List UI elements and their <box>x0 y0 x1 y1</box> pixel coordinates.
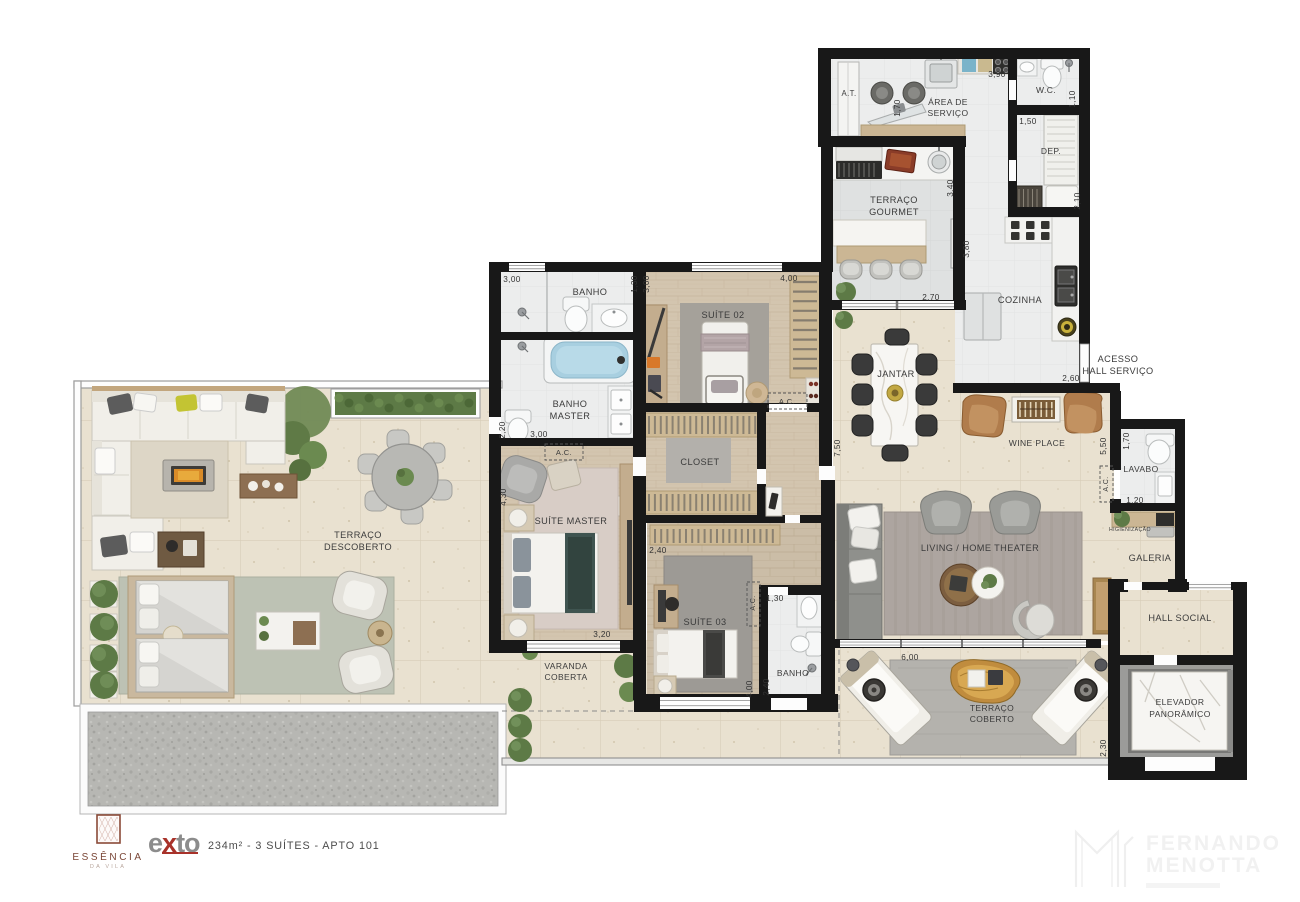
svg-text:TERRAÇO: TERRAÇO <box>870 195 918 205</box>
svg-text:2,40: 2,40 <box>762 678 771 696</box>
svg-text:3,20: 3,20 <box>593 630 611 639</box>
svg-text:1,30: 1,30 <box>766 594 784 603</box>
svg-text:A.C.: A.C. <box>750 595 757 610</box>
svg-text:A.C.: A.C. <box>1103 476 1110 491</box>
svg-text:1,20: 1,20 <box>1126 496 1144 505</box>
svg-text:FERNANDO: FERNANDO <box>1146 832 1281 855</box>
svg-text:7,50: 7,50 <box>833 439 842 457</box>
svg-text:A.C.: A.C. <box>779 397 795 406</box>
svg-text:3,00: 3,00 <box>503 275 521 284</box>
svg-text:TERRAÇO: TERRAÇO <box>970 703 1014 713</box>
svg-text:2,30: 2,30 <box>1099 739 1108 757</box>
svg-text:DEP.: DEP. <box>1041 146 1061 156</box>
svg-text:SUÍTE 03: SUÍTE 03 <box>683 617 726 627</box>
svg-text:LIVING / HOME THEATER: LIVING / HOME THEATER <box>921 543 1039 553</box>
svg-text:ESSÊNCIA: ESSÊNCIA <box>72 850 143 863</box>
svg-text:MENOTTA: MENOTTA <box>1146 854 1262 877</box>
svg-text:SERVIÇO: SERVIÇO <box>928 108 969 118</box>
svg-text:A.C.: A.C. <box>556 448 572 457</box>
svg-text:HALL SERVIÇO: HALL SERVIÇO <box>1082 366 1153 376</box>
svg-text:ÁREA DE: ÁREA DE <box>928 97 968 107</box>
svg-text:ELEVADOR: ELEVADOR <box>1156 697 1205 707</box>
svg-text:1,70: 1,70 <box>893 99 902 117</box>
svg-text:W.C.: W.C. <box>1036 85 1056 95</box>
svg-text:SUÍTE MASTER: SUÍTE MASTER <box>535 516 608 526</box>
svg-text:3,40: 3,40 <box>946 179 955 197</box>
svg-text:VARANDA: VARANDA <box>544 661 587 671</box>
svg-text:5,50: 5,50 <box>1099 437 1108 455</box>
svg-text:CLOSET: CLOSET <box>680 457 719 467</box>
svg-text:2,20: 2,20 <box>498 421 507 439</box>
svg-text:GALERIA: GALERIA <box>1129 553 1172 563</box>
svg-text:DESCOBERTO: DESCOBERTO <box>324 542 392 552</box>
svg-text:GOURMET: GOURMET <box>869 207 919 217</box>
svg-text:2,60: 2,60 <box>1062 374 1080 383</box>
svg-text:BANHO: BANHO <box>553 399 588 409</box>
svg-text:JANTAR: JANTAR <box>877 369 914 379</box>
svg-text:3,90: 3,90 <box>988 70 1006 79</box>
svg-text:HIGIENIZAÇÃO: HIGIENIZAÇÃO <box>1109 526 1151 533</box>
svg-text:4,30: 4,30 <box>499 488 508 506</box>
svg-text:6,00: 6,00 <box>901 653 919 662</box>
svg-text:DA VILA: DA VILA <box>90 864 126 870</box>
svg-text:MASTER: MASTER <box>550 411 591 421</box>
svg-text:COBERTA: COBERTA <box>544 672 587 682</box>
svg-text:1,50: 1,50 <box>1019 117 1037 126</box>
svg-text:BANHO: BANHO <box>777 668 809 678</box>
svg-text:COBERTO: COBERTO <box>970 714 1015 724</box>
svg-text:2,10: 2,10 <box>1073 192 1082 210</box>
svg-text:A.T.: A.T. <box>841 89 856 98</box>
svg-text:1,30: 1,30 <box>630 275 639 293</box>
svg-text:ACESSO: ACESSO <box>1098 354 1139 364</box>
svg-text:3,00: 3,00 <box>530 430 548 439</box>
svg-text:1,70: 1,70 <box>1122 432 1131 450</box>
svg-text:2,40: 2,40 <box>649 546 667 555</box>
svg-text:LAVABO: LAVABO <box>1123 464 1158 474</box>
svg-text:WINE PLACE: WINE PLACE <box>1009 438 1065 448</box>
svg-text:BANHO: BANHO <box>573 287 608 297</box>
svg-text:3,00: 3,00 <box>642 275 651 293</box>
svg-text:2,70: 2,70 <box>922 293 940 302</box>
svg-text:SUÍTE 02: SUÍTE 02 <box>701 310 744 320</box>
svg-text:TERRAÇO: TERRAÇO <box>334 530 382 540</box>
svg-text:HALL SOCIAL: HALL SOCIAL <box>1148 613 1211 623</box>
svg-text:1,10: 1,10 <box>1068 90 1077 108</box>
svg-text:PANORÂMICO: PANORÂMICO <box>1149 709 1210 719</box>
svg-text:3,80: 3,80 <box>962 240 971 258</box>
svg-text:COZINHA: COZINHA <box>998 295 1043 305</box>
svg-text:4,00: 4,00 <box>745 680 754 698</box>
svg-text:234m² - 3 SUÍTES - APTO 101: 234m² - 3 SUÍTES - APTO 101 <box>208 839 380 852</box>
svg-text:4,00: 4,00 <box>780 274 798 283</box>
